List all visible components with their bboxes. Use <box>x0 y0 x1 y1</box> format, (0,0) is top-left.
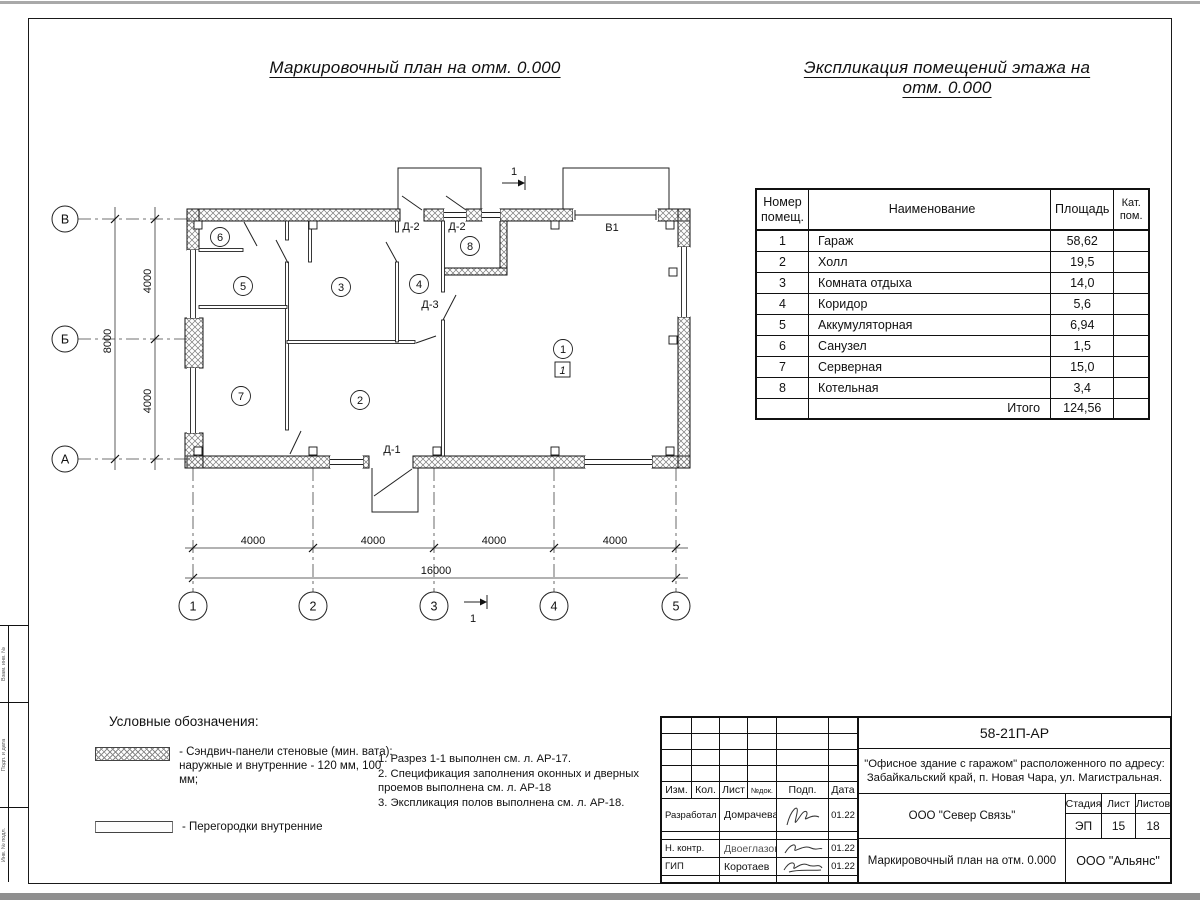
svg-text:16000: 16000 <box>421 565 452 577</box>
svg-text:Б: Б <box>61 333 69 347</box>
table-row: 3 Комната отдыха 14,0 <box>756 272 1149 293</box>
section-mark-top: 1 <box>502 166 525 190</box>
cell-number: 7 <box>756 356 809 377</box>
svg-text:3: 3 <box>338 282 344 294</box>
col-header-category: Кат. пом. <box>1114 189 1149 230</box>
organization: ООО "Север Связь" <box>859 794 1066 838</box>
col-kol: Кол. <box>692 782 720 799</box>
svg-text:4000: 4000 <box>241 535 265 547</box>
staff-date: 01.22 <box>829 840 857 858</box>
svg-text:6: 6 <box>217 232 223 244</box>
note-line: проемов выполнена см. л. АР-18 <box>378 781 658 796</box>
svg-text:1: 1 <box>470 613 476 625</box>
cell-category <box>1114 335 1149 356</box>
sheet-label: Лист <box>1102 794 1136 813</box>
note-line: 1. Разрез 1-1 выполнен см. л. АР-17. <box>378 752 658 767</box>
svg-text:4000: 4000 <box>482 535 506 547</box>
sheet-title: Маркировочный план на отм. 0.000 <box>859 839 1066 882</box>
signature-icon <box>777 799 829 832</box>
side-strip-label: Инв. № подл. <box>1 828 7 862</box>
legend: Условные обозначения: - Сэндвич-панели с… <box>95 714 395 834</box>
svg-text:4000: 4000 <box>603 535 627 547</box>
title-block-revisions: Изм. Кол. Лист №док. Подп. Дата Разработ… <box>662 718 859 882</box>
cell-category <box>1114 272 1149 293</box>
column-marks <box>194 221 677 455</box>
room-markers: 1 2 3 4 5 6 7 8 1 <box>211 228 573 410</box>
gate-opening <box>573 209 658 221</box>
side-strip-cell: Инв. № подл. <box>0 808 29 882</box>
note-line: 2. Спецификация заполнения оконных и две… <box>378 767 658 782</box>
cell-number: 3 <box>756 272 809 293</box>
explication-title: Экспликация помещений этажа на отм. 0.00… <box>782 58 1112 98</box>
col-list: Лист <box>720 782 748 799</box>
cell-name: Аккумуляторная <box>809 314 1051 335</box>
stage-sheet-cells: Стадия Лист Листов ЭП 15 18 <box>1066 794 1170 838</box>
svg-text:5: 5 <box>240 281 246 293</box>
svg-text:2: 2 <box>357 395 363 407</box>
legend-item-text: - Сэндвич-панели стеновые (мин. вата): <box>179 745 395 759</box>
cell-number: 2 <box>756 251 809 272</box>
note-line: 3. Экспликация полов выполнена см. л. АР… <box>378 796 658 811</box>
page-top-edge <box>0 1 1200 4</box>
title-block-info: 58-21П-АР "Офисное здание с гаражом" рас… <box>859 718 1170 882</box>
col-header-name: Наименование <box>809 189 1051 230</box>
svg-text:2: 2 <box>310 600 317 614</box>
table-row: 5 Аккумуляторная 6,94 <box>756 314 1149 335</box>
staff-row-gip: ГИП Коротаев 01.22 <box>662 858 857 876</box>
sheet-value: 15 <box>1102 814 1136 838</box>
floor-plan: 4000 4000 8000 4000 4000 4000 4000 16000 <box>0 140 720 640</box>
page-bottom-edge <box>0 893 1200 900</box>
staff-name: Домрачева <box>720 799 777 832</box>
hatched-wall-swatch-icon <box>95 747 170 761</box>
cell-category <box>1114 377 1149 398</box>
svg-text:8: 8 <box>467 241 473 253</box>
legend-title: Условные обозначения: <box>109 714 395 729</box>
total-label: Итого <box>809 398 1051 419</box>
cell-area: 19,5 <box>1051 251 1114 272</box>
cell-area: 3,4 <box>1051 377 1114 398</box>
svg-text:1: 1 <box>560 344 566 356</box>
plan-title: Маркировочный план на отм. 0.000 <box>250 58 580 78</box>
col-podp: Подп. <box>777 782 829 799</box>
room-explication-table: Номер помещ. Наименование Площадь Кат. п… <box>755 188 1150 420</box>
legend-item-text: наружные и внутренние - 120 мм, 100 мм; <box>179 759 395 787</box>
section-mark-bottom: 1 <box>464 595 487 625</box>
total-value: 124,56 <box>1051 398 1114 419</box>
cell-area: 6,94 <box>1051 314 1114 335</box>
side-strip-cell: Взам. инв. № <box>0 626 29 703</box>
svg-text:5: 5 <box>673 600 680 614</box>
cell-name: Комната отдыха <box>809 272 1051 293</box>
signature-icon <box>777 858 829 876</box>
exterior-walls <box>185 209 690 468</box>
col-dok: №док. <box>748 782 777 799</box>
cell-area: 5,6 <box>1051 293 1114 314</box>
cell-area: 58,62 <box>1051 230 1114 251</box>
cell-category <box>1114 314 1149 335</box>
svg-text:В: В <box>61 213 69 227</box>
staff-date: 01.22 <box>829 858 857 876</box>
drawing-sheet: Маркировочный план на отм. 0.000 Эксплик… <box>0 0 1200 900</box>
interior-partitions <box>199 221 445 456</box>
svg-text:4000: 4000 <box>361 535 385 547</box>
staff-role: ГИП <box>662 858 720 876</box>
legend-item-sandwich-panels: - Сэндвич-панели стеновые (мин. вата): н… <box>95 745 395 787</box>
dimension-labels: 4000 4000 8000 4000 4000 4000 4000 16000 <box>102 269 627 577</box>
svg-text:Д-2: Д-2 <box>402 221 419 233</box>
partition-swatch-icon <box>95 821 173 833</box>
side-strip-cell: Подп. и дата <box>0 703 29 808</box>
stage-label: Стадия <box>1066 794 1102 813</box>
svg-text:1: 1 <box>511 166 517 178</box>
side-attribute-strip: Взам. инв. № Подп. и дата Инв. № подл. <box>0 625 29 884</box>
svg-text:1: 1 <box>559 365 565 377</box>
svg-text:Д-2: Д-2 <box>448 221 465 233</box>
table-row: 4 Коридор 5,6 <box>756 293 1149 314</box>
table-total-row: Итого 124,56 <box>756 398 1149 419</box>
svg-text:Д-1: Д-1 <box>383 444 400 456</box>
staff-row-developer: Разработал Домрачева 01.22 <box>662 799 857 832</box>
sheets-value: 18 <box>1136 814 1170 838</box>
staff-name: Двоеглазов <box>720 840 777 858</box>
cell-category <box>1114 398 1149 419</box>
svg-text:7: 7 <box>238 391 244 403</box>
cell-number: 8 <box>756 377 809 398</box>
svg-text:А: А <box>61 453 70 467</box>
table-row: 1 Гараж 58,62 <box>756 230 1149 251</box>
cell-number: 6 <box>756 335 809 356</box>
cell-name: Коридор <box>809 293 1051 314</box>
cell-name: Гараж <box>809 230 1051 251</box>
svg-text:8000: 8000 <box>102 329 114 353</box>
stage-value: ЭП <box>1066 814 1102 838</box>
svg-text:4: 4 <box>416 279 422 291</box>
cell-name: Котельная <box>809 377 1051 398</box>
signature-icon <box>777 840 829 858</box>
col-izm: Изм. <box>662 782 692 799</box>
cell-name: Серверная <box>809 356 1051 377</box>
svg-text:В1: В1 <box>605 222 618 234</box>
axis-col-circles: 1 2 3 4 5 <box>179 592 690 620</box>
legend-item-partitions: - Перегородки внутренние <box>95 819 395 834</box>
table-row: 6 Санузел 1,5 <box>756 335 1149 356</box>
side-strip-label: Подп. и дата <box>1 739 7 771</box>
cell-area: 14,0 <box>1051 272 1114 293</box>
side-strip-label: Взам. инв. № <box>1 647 7 681</box>
staff-date: 01.22 <box>829 799 857 832</box>
staff-row-ncontrol: Н. контр. Двоеглазов 01.22 <box>662 840 857 858</box>
cell-category <box>1114 251 1149 272</box>
svg-text:4000: 4000 <box>142 389 154 413</box>
cell-category <box>1114 293 1149 314</box>
svg-text:1: 1 <box>190 600 197 614</box>
notes: 1. Разрез 1-1 выполнен см. л. АР-17. 2. … <box>378 752 658 811</box>
sheets-label: Листов <box>1136 794 1170 813</box>
axis-row-circles: В Б А <box>52 206 78 472</box>
staff-name: Коротаев <box>720 858 777 876</box>
document-number: 58-21П-АР <box>859 718 1170 749</box>
table-row: 2 Холл 19,5 <box>756 251 1149 272</box>
svg-text:4: 4 <box>551 600 558 614</box>
table-row: 8 Котельная 3,4 <box>756 377 1149 398</box>
cell-name: Санузел <box>809 335 1051 356</box>
staff-role: Н. контр. <box>662 840 720 858</box>
cell-area: 15,0 <box>1051 356 1114 377</box>
svg-text:4000: 4000 <box>142 269 154 293</box>
cell-category <box>1114 356 1149 377</box>
cell-area: 1,5 <box>1051 335 1114 356</box>
col-header-number: Номер помещ. <box>756 189 809 230</box>
project-description: "Офисное здание с гаражом" расположенног… <box>859 749 1170 794</box>
cell-number: 4 <box>756 293 809 314</box>
table-row: 7 Серверная 15,0 <box>756 356 1149 377</box>
cell-number: 5 <box>756 314 809 335</box>
staff-role: Разработал <box>662 799 720 832</box>
cell-category <box>1114 230 1149 251</box>
title-block: Изм. Кол. Лист №док. Подп. Дата Разработ… <box>660 716 1172 884</box>
cell-name: Холл <box>809 251 1051 272</box>
svg-text:3: 3 <box>431 600 438 614</box>
col-data: Дата <box>829 782 857 799</box>
company: ООО "Альянс" <box>1066 839 1170 882</box>
cell-number <box>756 398 809 419</box>
svg-text:Д-3: Д-3 <box>421 299 438 311</box>
legend-item-text: - Перегородки внутренние <box>182 820 323 834</box>
windows <box>187 209 690 468</box>
cell-number: 1 <box>756 230 809 251</box>
col-header-area: Площадь <box>1051 189 1114 230</box>
